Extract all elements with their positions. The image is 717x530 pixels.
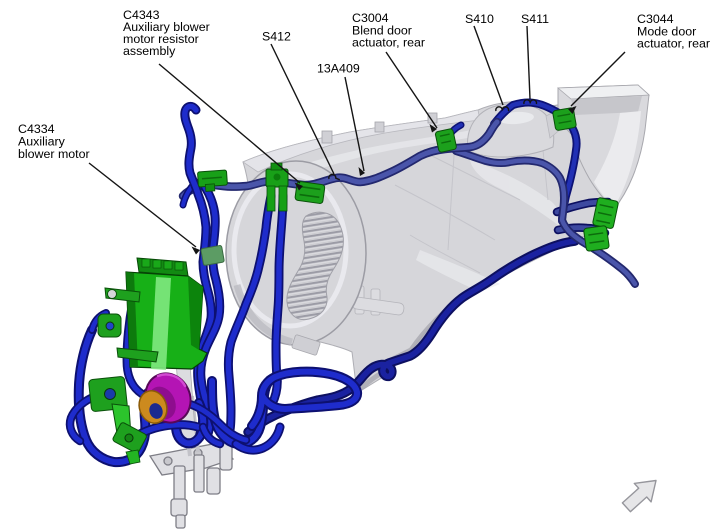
- svg-text:S410: S410: [465, 12, 494, 26]
- svg-text:assembly: assembly: [123, 44, 176, 58]
- svg-text:S411: S411: [521, 12, 549, 26]
- svg-text:blower motor: blower motor: [18, 147, 90, 161]
- svg-text:13A409: 13A409: [317, 62, 360, 76]
- svg-text:actuator, rear: actuator, rear: [352, 36, 425, 50]
- svg-text:actuator, rear: actuator, rear: [637, 37, 710, 51]
- svg-text:S412: S412: [262, 30, 291, 44]
